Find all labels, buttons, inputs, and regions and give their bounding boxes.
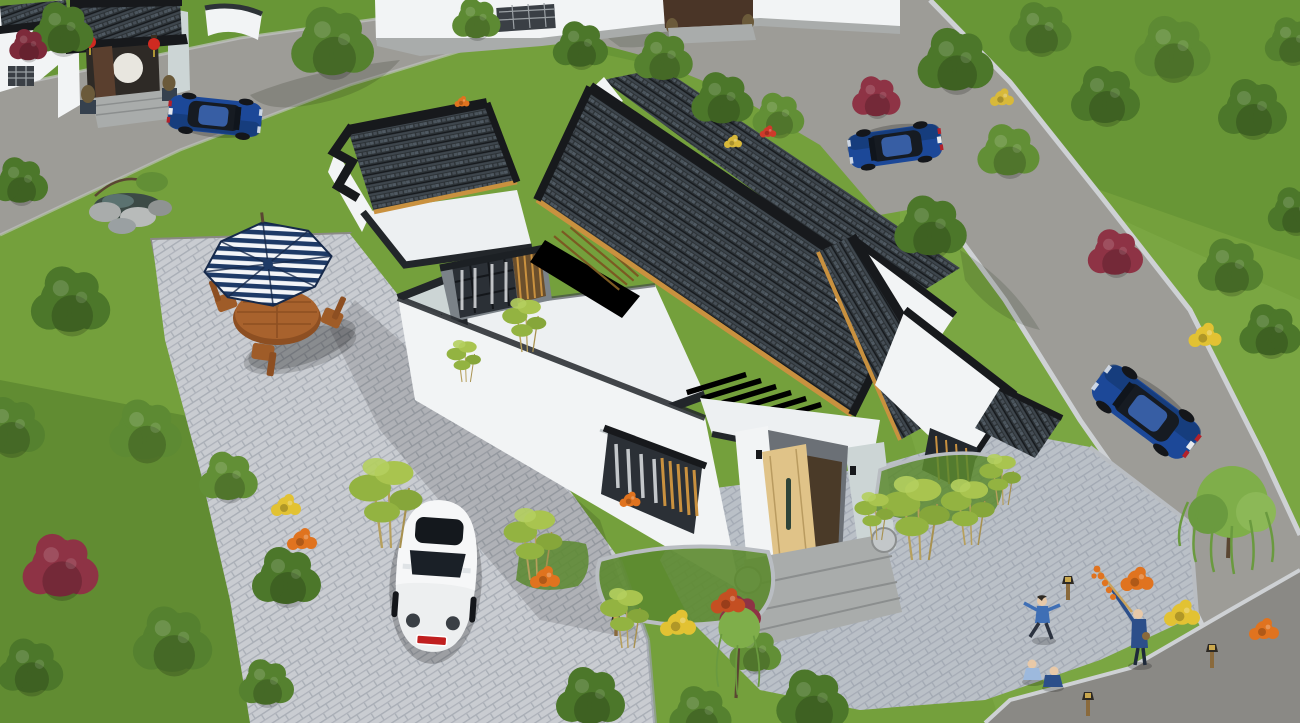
gate-door-leaf: [92, 46, 116, 101]
satchel: [1142, 632, 1150, 640]
moon-gate: [113, 53, 143, 83]
drum-stone: [872, 528, 896, 552]
aerial-render-scene: [0, 0, 1300, 723]
wall-lamp: [756, 450, 762, 459]
scene-canvas: [0, 0, 1300, 723]
sunroof: [414, 516, 464, 545]
license-plate: [416, 635, 447, 646]
door-handle: [786, 478, 791, 530]
wall-lamp: [850, 466, 856, 475]
windshield: [408, 550, 466, 578]
